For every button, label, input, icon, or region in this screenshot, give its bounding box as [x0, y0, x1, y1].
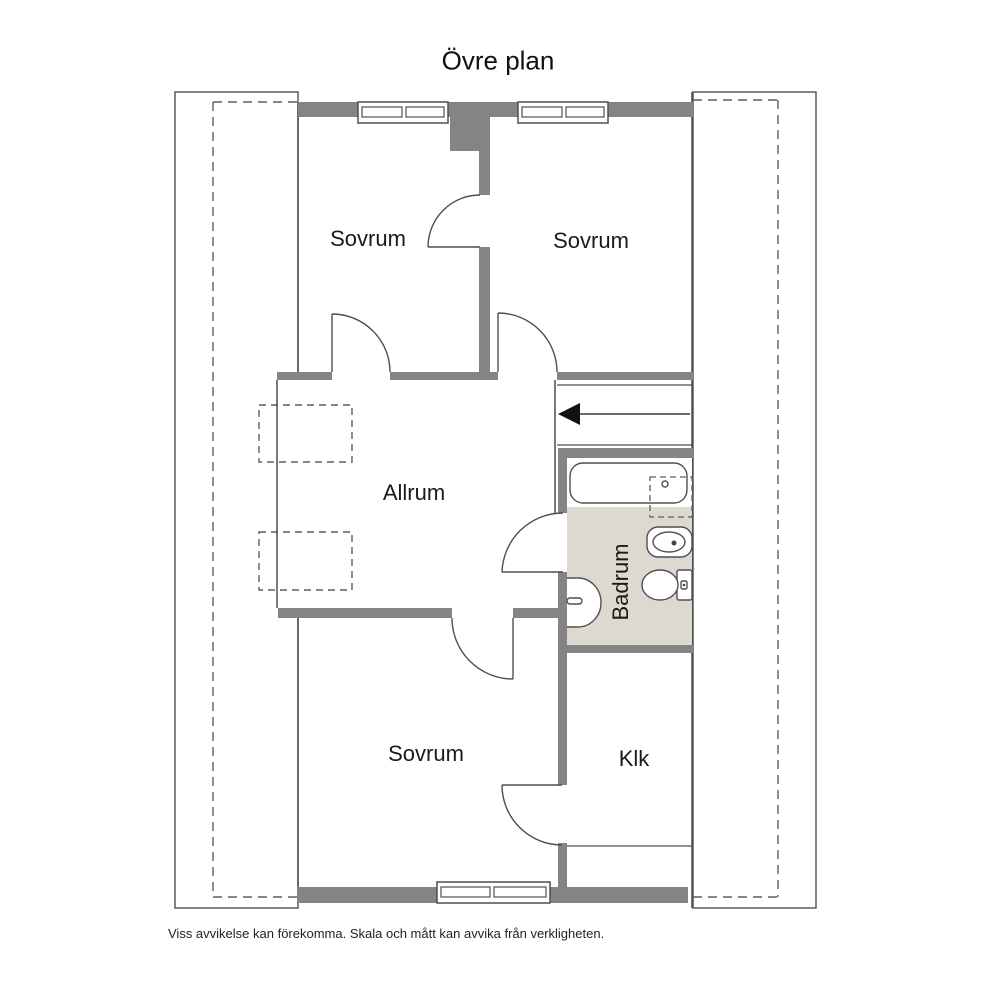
window-top-right: [518, 102, 608, 123]
bathtub: [570, 463, 687, 503]
page-title: Övre plan: [442, 46, 555, 77]
room-label-sovrum-top-left: Sovrum: [330, 226, 406, 252]
room-label-sovrum-bottom: Sovrum: [388, 741, 464, 767]
window-top-left: [358, 102, 448, 123]
door-klk: [502, 785, 562, 845]
floor-plan-canvas: Övre plan Sovrum Sovrum Allrum Badrum So…: [0, 0, 992, 992]
bidet: [647, 527, 692, 557]
door-sovrum-bottom: [452, 618, 513, 679]
floor-plan-drawing: [0, 0, 992, 992]
door-between-bedrooms: [428, 195, 480, 247]
stairs-down-arrow-icon: [558, 403, 580, 425]
roof-strip-right: [693, 92, 816, 908]
window-bottom: [437, 882, 550, 903]
disclaimer-text: Viss avvikelse kan förekomma. Skala och …: [168, 926, 604, 941]
room-label-sovrum-top-right: Sovrum: [553, 228, 629, 254]
room-label-klk: Klk: [619, 746, 650, 772]
door-sovrum-top-left: [332, 314, 390, 372]
door-sovrum-top-right: [498, 313, 557, 372]
room-label-allrum: Allrum: [383, 480, 445, 506]
toilet: [642, 570, 692, 600]
room-label-badrum: Badrum: [608, 543, 634, 620]
